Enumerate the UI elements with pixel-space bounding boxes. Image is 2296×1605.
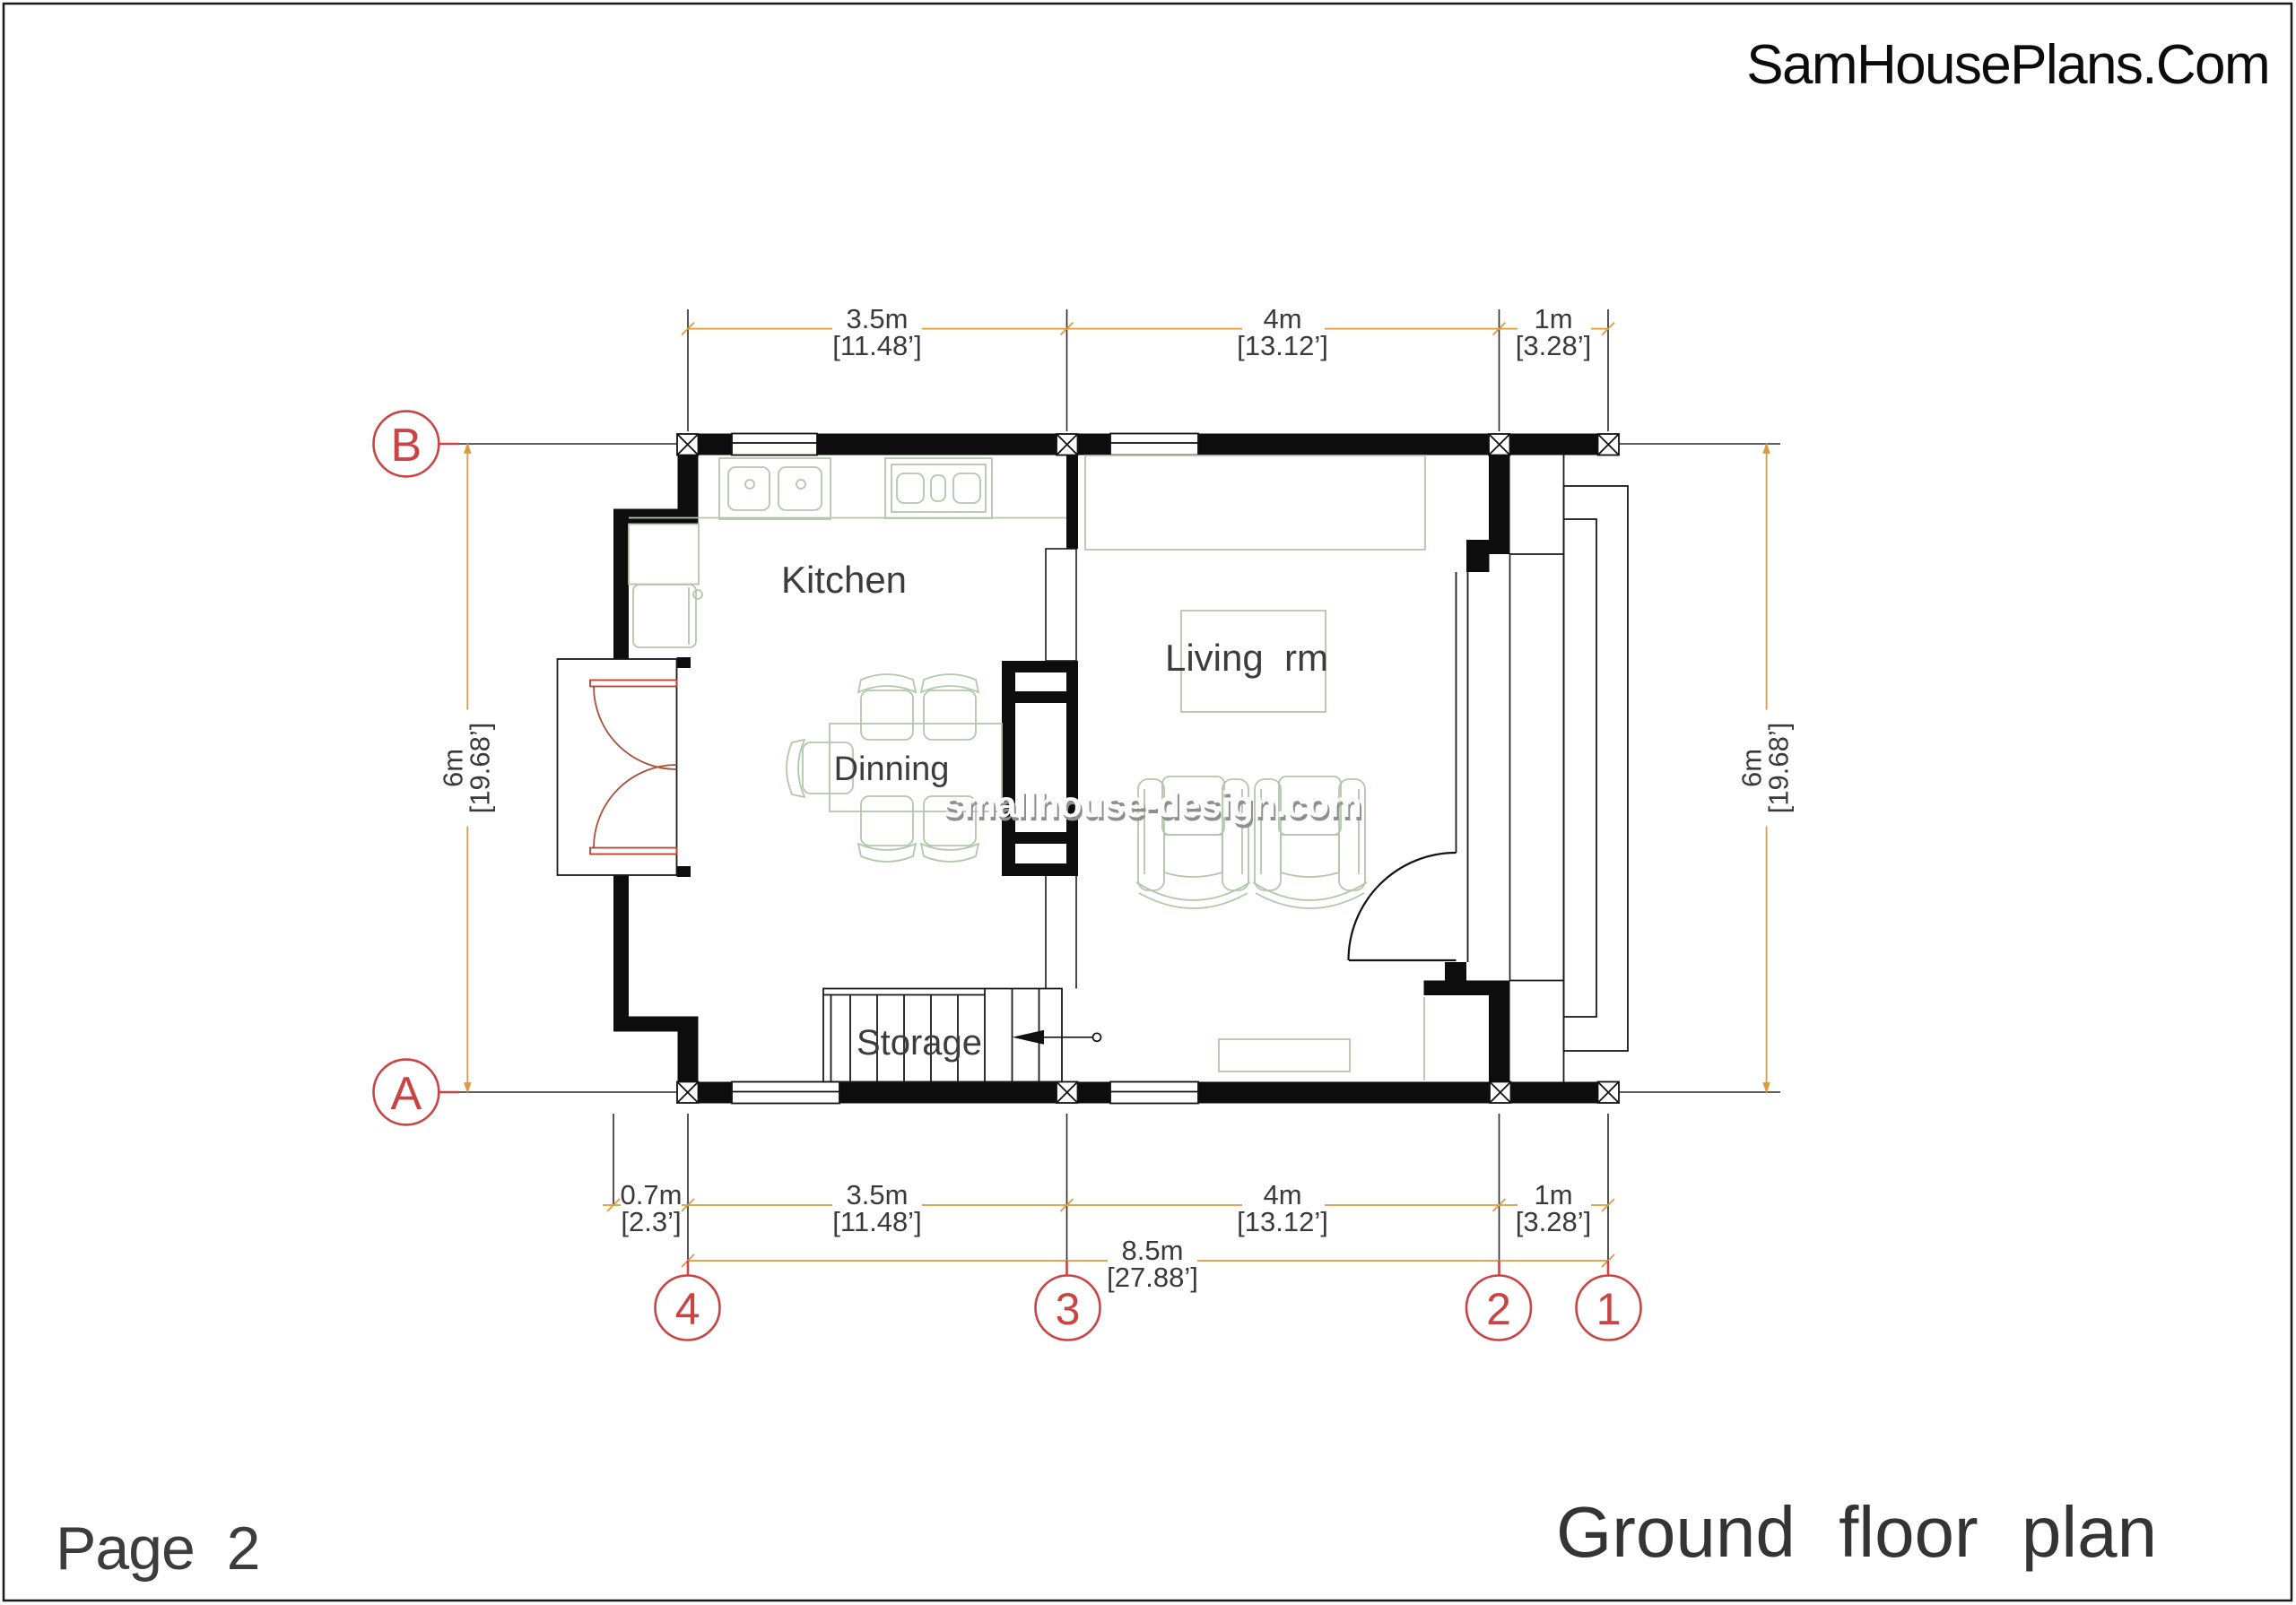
svg-text:[19.68’]: [19.68’] xyxy=(1763,723,1795,814)
svg-text:[13.12’]: [13.12’] xyxy=(1237,1206,1328,1237)
svg-text:[19.68’]: [19.68’] xyxy=(464,723,495,814)
svg-text:3: 3 xyxy=(1056,1284,1081,1334)
svg-text:[27.88’]: [27.88’] xyxy=(1107,1262,1198,1293)
svg-text:Storage: Storage xyxy=(857,1023,982,1063)
svg-text:Ground floor plan: Ground floor plan xyxy=(1556,1492,2157,1572)
svg-text:Living rm: Living rm xyxy=(1165,637,1328,679)
svg-text:Dinning: Dinning xyxy=(834,750,950,788)
svg-text:[13.12’]: [13.12’] xyxy=(1237,330,1328,361)
svg-text:[3.28’]: [3.28’] xyxy=(1516,1206,1591,1237)
svg-text:A: A xyxy=(391,1068,422,1120)
svg-text:4: 4 xyxy=(675,1284,700,1334)
svg-text:SamHousePlans.Com: SamHousePlans.Com xyxy=(1746,34,2269,96)
svg-text:Kitchen: Kitchen xyxy=(781,559,907,601)
svg-text:[3.28’]: [3.28’] xyxy=(1516,330,1591,361)
svg-text:smallhouse-design.com: smallhouse-design.com xyxy=(943,784,1361,825)
svg-text:[11.48’]: [11.48’] xyxy=(832,330,921,361)
svg-text:[2.3’]: [2.3’] xyxy=(621,1206,681,1237)
svg-text:B: B xyxy=(391,420,422,472)
svg-text:[11.48’]: [11.48’] xyxy=(832,1206,921,1237)
svg-text:2: 2 xyxy=(1486,1284,1511,1334)
svg-text:Page 2: Page 2 xyxy=(56,1514,259,1583)
svg-text:1: 1 xyxy=(1596,1284,1622,1334)
